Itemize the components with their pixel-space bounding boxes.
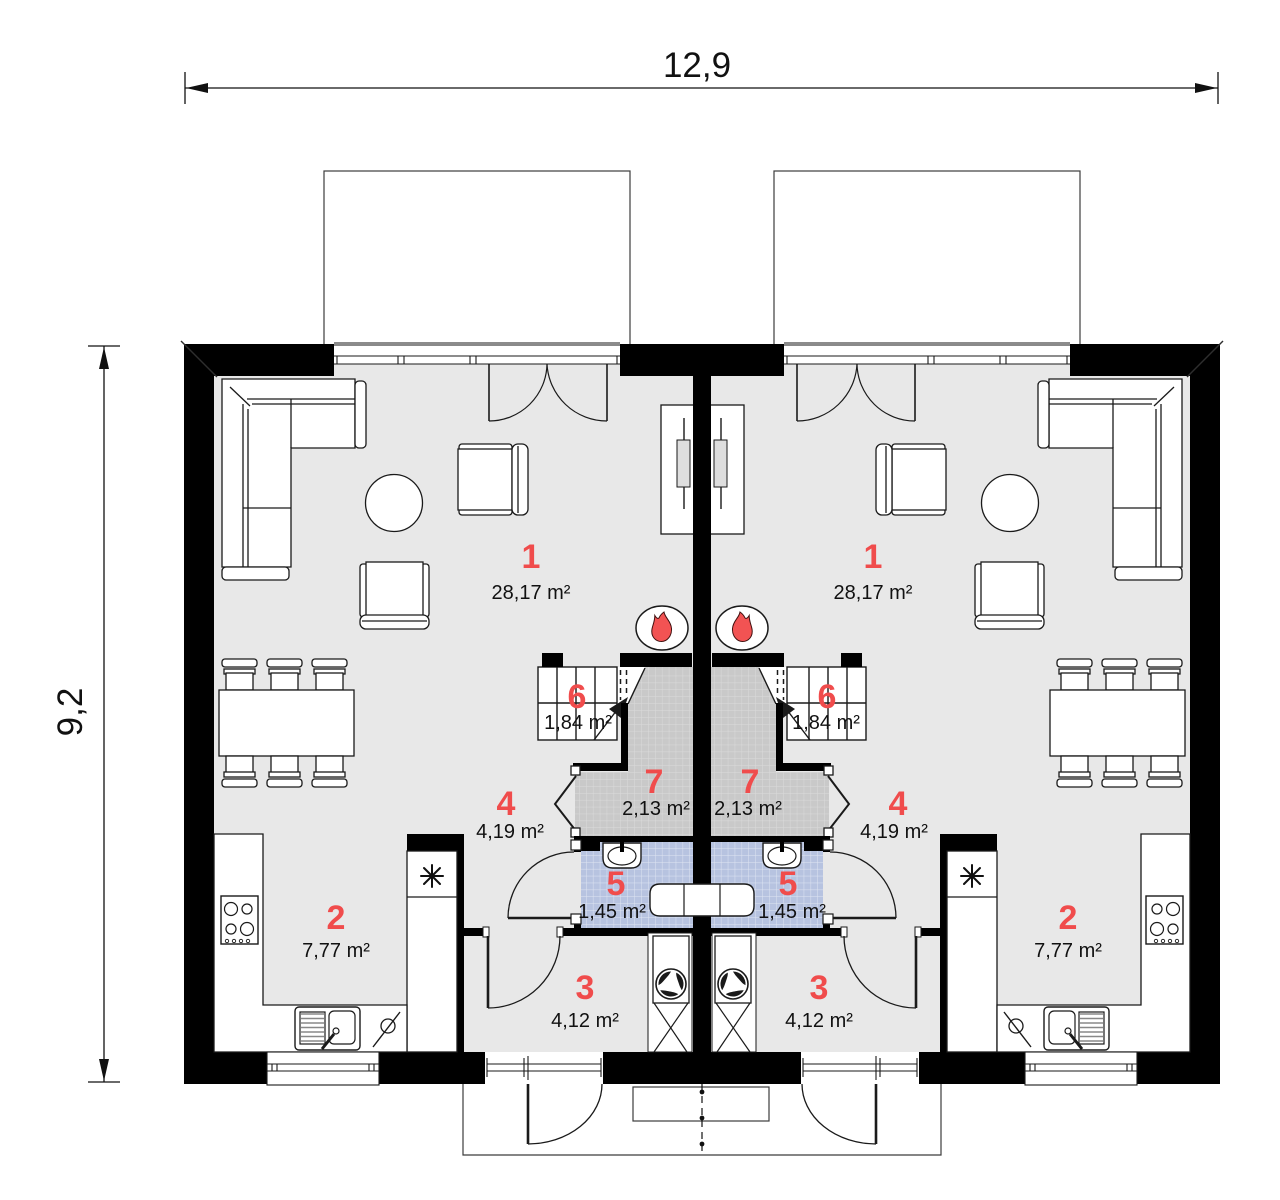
svg-text:7,77 m²: 7,77 m² (302, 940, 370, 962)
svg-text:4: 4 (889, 785, 908, 823)
svg-text:2,13 m²: 2,13 m² (622, 798, 690, 820)
svg-text:5: 5 (779, 865, 798, 903)
svg-text:2: 2 (1059, 899, 1078, 937)
svg-text:4,12 m²: 4,12 m² (551, 1010, 619, 1032)
svg-text:6: 6 (568, 678, 587, 716)
svg-text:1,45 m²: 1,45 m² (758, 901, 826, 923)
svg-text:2,13 m²: 2,13 m² (714, 798, 782, 820)
svg-text:3: 3 (576, 969, 595, 1007)
svg-text:5: 5 (607, 865, 626, 903)
svg-text:7: 7 (741, 763, 760, 801)
svg-text:1,84 m²: 1,84 m² (544, 712, 612, 734)
svg-text:1: 1 (864, 538, 883, 576)
svg-text:4: 4 (497, 785, 516, 823)
svg-text:7: 7 (645, 763, 664, 801)
svg-text:6: 6 (818, 678, 837, 716)
svg-text:3: 3 (810, 969, 829, 1007)
svg-text:9,2: 9,2 (51, 688, 90, 737)
svg-text:12,9: 12,9 (663, 46, 731, 85)
svg-text:4,19 m²: 4,19 m² (860, 821, 928, 843)
svg-text:28,17 m²: 28,17 m² (834, 582, 913, 604)
svg-text:1,84 m²: 1,84 m² (792, 712, 860, 734)
svg-text:2: 2 (327, 899, 346, 937)
svg-text:4,19 m²: 4,19 m² (476, 821, 544, 843)
svg-text:1: 1 (522, 538, 541, 576)
svg-text:7,77 m²: 7,77 m² (1034, 940, 1102, 962)
svg-text:28,17 m²: 28,17 m² (492, 582, 571, 604)
svg-text:4,12 m²: 4,12 m² (785, 1010, 853, 1032)
svg-text:1,45 m²: 1,45 m² (578, 901, 646, 923)
